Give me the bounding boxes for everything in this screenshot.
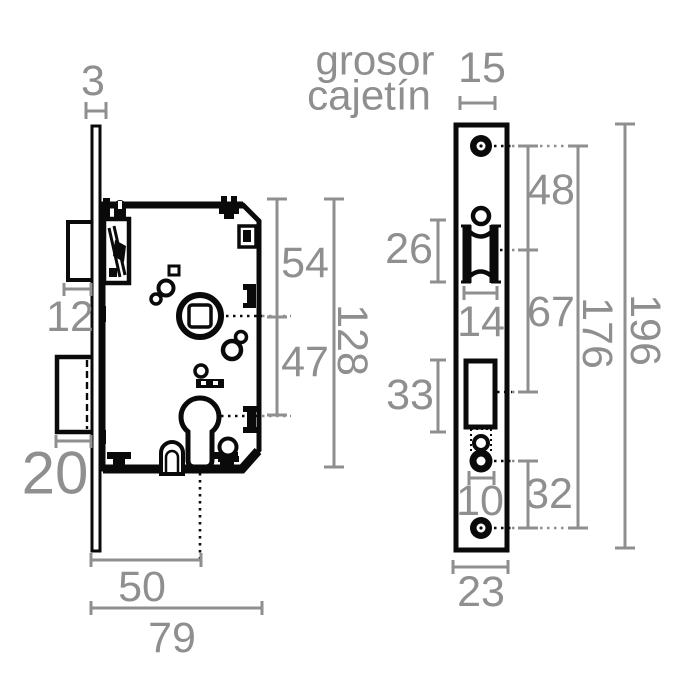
drawing-canvas: 3 12 20 54 47 128 50 79 grosor bbox=[0, 0, 700, 700]
dim-plate-thickness-value: 3 bbox=[81, 57, 105, 105]
dim-plate-thickness: 3 bbox=[81, 57, 106, 119]
dim-screw-spacing: 176 bbox=[568, 146, 621, 528]
dim-case-thickness-value: 15 bbox=[458, 44, 506, 92]
dim-faceplate-height: 196 bbox=[615, 124, 669, 548]
dim-latch-protrusion-value: 12 bbox=[46, 293, 94, 341]
dim-deadbolt-protrusion-value: 20 bbox=[22, 440, 89, 507]
dim-latch-to-bolt-value: 67 bbox=[527, 288, 575, 336]
top-clip bbox=[103, 198, 126, 217]
dim-total-depth: 79 bbox=[91, 601, 262, 662]
dim-bolt-height: 33 bbox=[386, 360, 446, 432]
spindle-follower bbox=[179, 295, 221, 337]
deadbolt-opening bbox=[466, 361, 495, 427]
lock-technical-drawing: 3 12 20 54 47 128 50 79 grosor bbox=[0, 0, 700, 700]
top-screw bbox=[470, 135, 492, 157]
dim-cylinder-width: 10 bbox=[456, 471, 504, 525]
edge-notch bbox=[239, 226, 256, 247]
latch-box bbox=[104, 219, 129, 283]
dim-backset: 50 bbox=[91, 553, 201, 611]
dim-cylinder-width-value: 10 bbox=[456, 477, 504, 525]
dim-top-to-spindle-value: 54 bbox=[281, 239, 329, 287]
dim-case-height-value: 128 bbox=[328, 304, 376, 376]
dim-case-height: 128 bbox=[324, 199, 376, 467]
dim-latch-width-value: 14 bbox=[457, 298, 505, 346]
dim-faceplate-width: 23 bbox=[453, 560, 508, 616]
dim-spindle-to-cylinder-value: 47 bbox=[281, 338, 329, 386]
dim-faceplate-height-value: 196 bbox=[621, 294, 669, 366]
dim-bolt-height-value: 33 bbox=[386, 371, 434, 419]
dim-latch-height-value: 26 bbox=[385, 225, 433, 273]
cylinder-hole bbox=[181, 398, 219, 467]
title-line2: cajetín bbox=[307, 72, 431, 119]
dim-case-thickness: 15 bbox=[458, 44, 506, 110]
dim-screw-spacing-value: 176 bbox=[573, 297, 621, 369]
dim-total-depth-value: 79 bbox=[148, 614, 196, 662]
dim-deadbolt-protrusion: 20 bbox=[22, 435, 91, 507]
dim-segments-column: 48 67 32 bbox=[518, 146, 575, 528]
dim-latch-protrusion: 12 bbox=[46, 283, 94, 341]
dim-top-to-spindle: 54 47 bbox=[267, 199, 329, 415]
dim-backset-value: 50 bbox=[118, 563, 166, 611]
dim-faceplate-width-value: 23 bbox=[457, 568, 505, 616]
side-view: 3 12 20 54 47 128 50 79 bbox=[22, 57, 376, 662]
dim-screw-to-latch-value: 48 bbox=[527, 166, 575, 214]
dim-cylinder-to-screw-value: 32 bbox=[525, 470, 573, 518]
dim-latch-height: 26 bbox=[385, 220, 446, 282]
